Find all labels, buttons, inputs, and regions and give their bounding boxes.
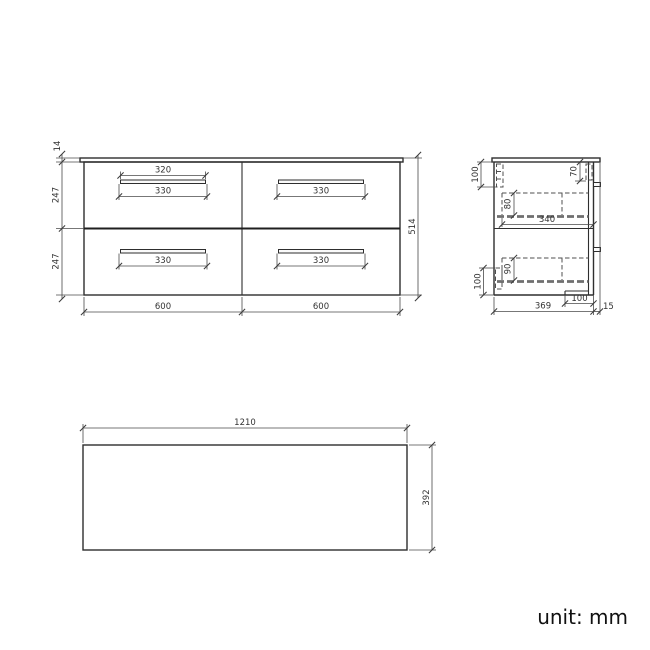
front-view: 14 247 247 514 600 600 320 3: [52, 141, 423, 316]
side-handle-bottom: [594, 248, 601, 252]
dim-upper-drawer-side: 80: [504, 199, 514, 210]
dim-body-depth: 369: [535, 302, 551, 312]
side-view: 100 70 80 340 90 100 100: [471, 158, 614, 315]
dim-base-recess: 100: [571, 294, 587, 304]
dim-front-top-inset: 70: [570, 166, 580, 177]
drawer-handle-bottom-left: [121, 250, 206, 254]
side-dimensions: 100 70 80 340 90 100 100: [471, 162, 614, 315]
drawer-handle-top-right: [279, 180, 364, 184]
drawer-handle-top-left: [121, 180, 206, 184]
side-handle-top: [594, 183, 601, 187]
dim-recess-top-left: 330: [155, 187, 171, 197]
dim-top-bracket-height: 100: [471, 166, 481, 182]
unit-label: unit: mm: [537, 605, 628, 629]
dim-bottom-bracket-height: 100: [474, 273, 484, 289]
plan-worktop-outline: [83, 445, 407, 550]
plan-dimensions: 1210 392: [83, 418, 436, 550]
dim-right-section-width: 600: [313, 302, 329, 312]
dim-worktop-overhang: 15: [603, 302, 614, 312]
front-cabinet-outline: [80, 158, 403, 295]
dim-recess-bottom-right: 330: [313, 256, 329, 266]
side-bottom-bracket: [496, 268, 503, 289]
dim-total-height: 514: [408, 218, 418, 234]
dim-handle-width: 320: [155, 166, 171, 176]
dim-plan-depth: 392: [422, 489, 432, 505]
technical-drawing-canvas: 14 247 247 514 600 600 320 3: [0, 0, 650, 650]
drawer-handle-bottom-right: [279, 250, 364, 254]
side-worktop: [492, 158, 600, 162]
plan-view: 1210 392: [83, 418, 436, 550]
dim-lower-drawer-side: 90: [504, 264, 514, 275]
dim-plan-width: 1210: [234, 418, 256, 428]
dim-worktop-thickness: 14: [53, 141, 63, 152]
dim-recess-top-right: 330: [313, 187, 329, 197]
dim-recess-bottom-left: 330: [155, 256, 171, 266]
dim-left-section-width: 600: [155, 302, 171, 312]
vanity-dimension-drawing: 14 247 247 514 600 600 320 3: [0, 0, 650, 650]
dim-drawer-depth: 340: [539, 215, 555, 225]
side-top-bracket: [497, 164, 504, 187]
dim-lower-drawer-height: 247: [52, 253, 62, 269]
dim-upper-drawer-height: 247: [52, 187, 62, 203]
